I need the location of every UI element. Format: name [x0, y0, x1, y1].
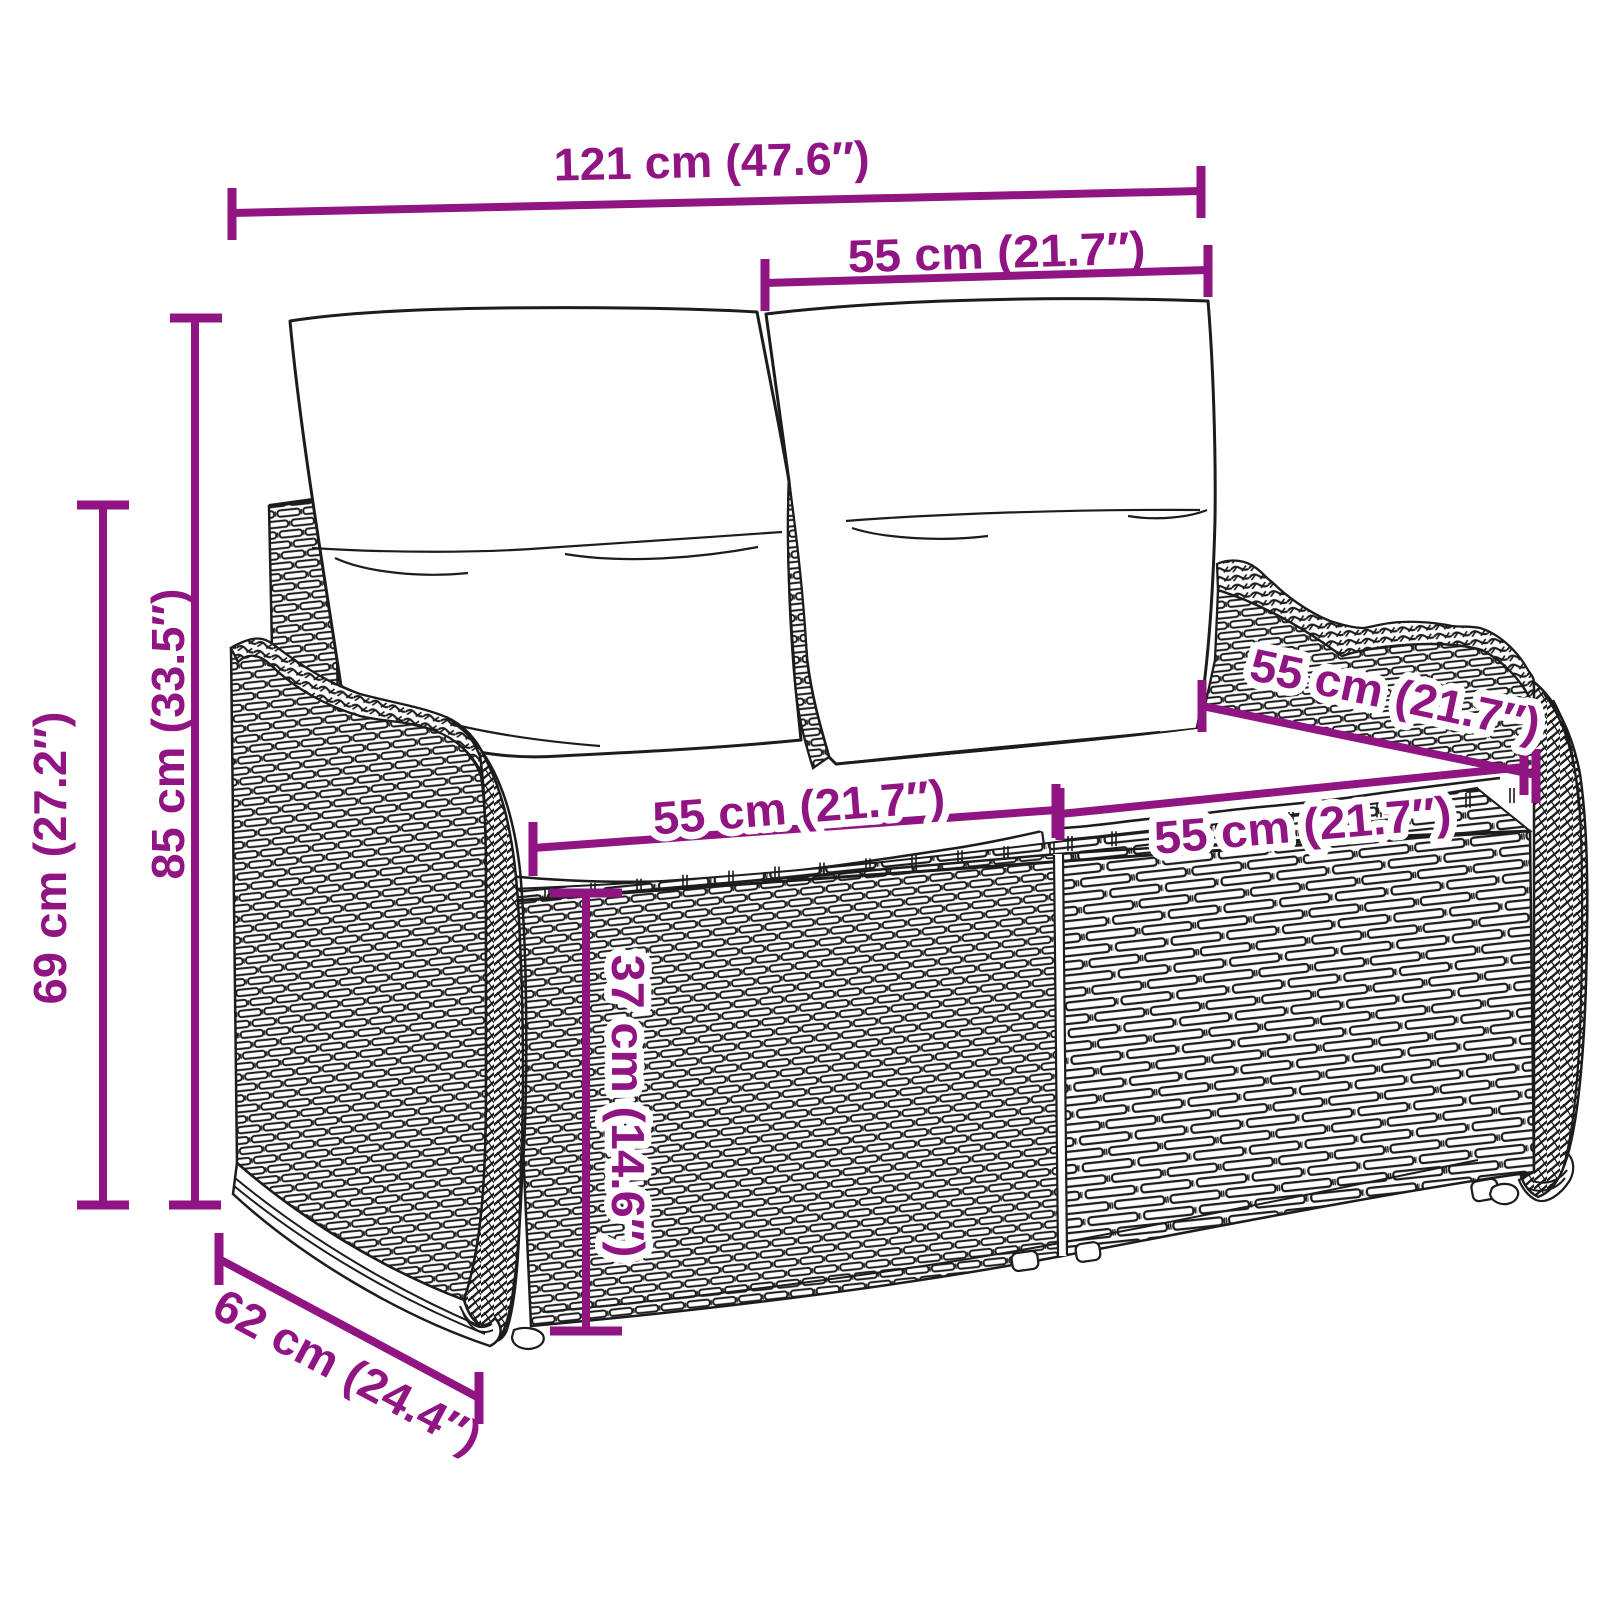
svg-text:85 cm (33.5″): 85 cm (33.5″) — [142, 589, 194, 880]
svg-text:69 cm (27.2″): 69 cm (27.2″) — [24, 712, 76, 1005]
svg-text:55 cm (21.7″): 55 cm (21.7″) — [847, 222, 1146, 283]
svg-text:121 cm (47.6″): 121 cm (47.6″) — [553, 131, 870, 190]
svg-text:37 cm (14.6″): 37 cm (14.6″) — [602, 955, 654, 1258]
